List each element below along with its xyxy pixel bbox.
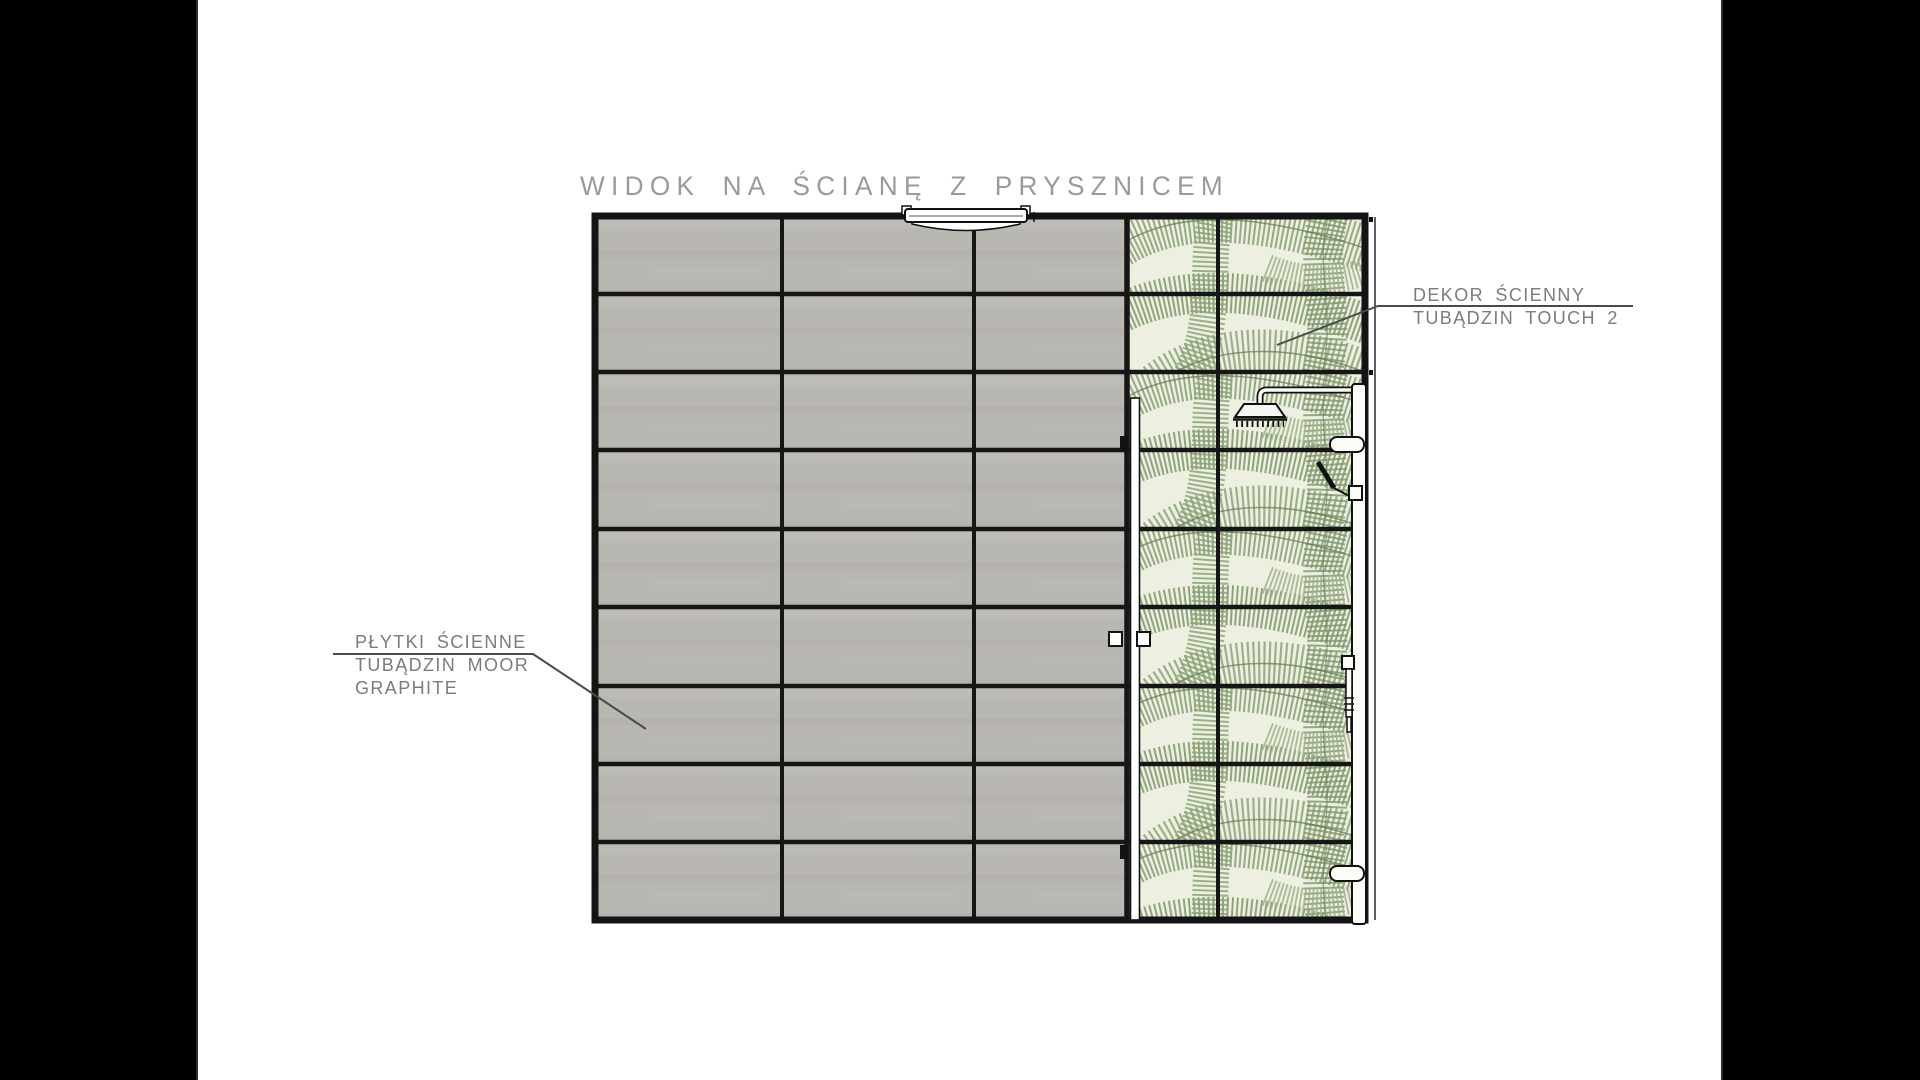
annotation-wall-tiles: PŁYTKI ŚCIENNE TUBĄDZIN MOOR GRAPHITE xyxy=(355,631,529,700)
door-hinge-top xyxy=(1120,436,1128,450)
annotation-decor-tiles: DEKOR ŚCIENNY TUBĄDZIN TOUCH 2 xyxy=(1413,284,1619,330)
column-bracket-top xyxy=(1330,437,1364,452)
annotation-decor-tiles-line2: TUBĄDZIN TOUCH 2 xyxy=(1413,307,1619,330)
panel-bracket-mark-mid xyxy=(1369,370,1373,375)
annotation-decor-tiles-line1: DEKOR ŚCIENNY xyxy=(1413,284,1619,307)
elevation-drawing xyxy=(0,0,1920,1080)
door-hinge-bottom xyxy=(1120,845,1128,859)
gray-tile-field xyxy=(595,216,1127,920)
annotation-wall-tiles-line2: TUBĄDZIN MOOR xyxy=(355,654,529,677)
annotation-wall-tiles-line3: GRAPHITE xyxy=(355,677,529,700)
tile-wall xyxy=(595,216,1375,920)
viewer-stage: WIDOK NA ŚCIANĘ Z PRYSZNICEM PŁYTKI ŚCIE… xyxy=(0,0,1920,1080)
annotation-wall-tiles-line1: PŁYTKI ŚCIENNE xyxy=(355,631,529,654)
panel-bracket-mark-top xyxy=(1369,217,1373,222)
drawing-title: WIDOK NA ŚCIANĘ Z PRYSZNICEM xyxy=(580,170,1229,202)
decor-tile-field xyxy=(1127,216,1365,920)
column-bracket-bottom xyxy=(1330,866,1364,881)
